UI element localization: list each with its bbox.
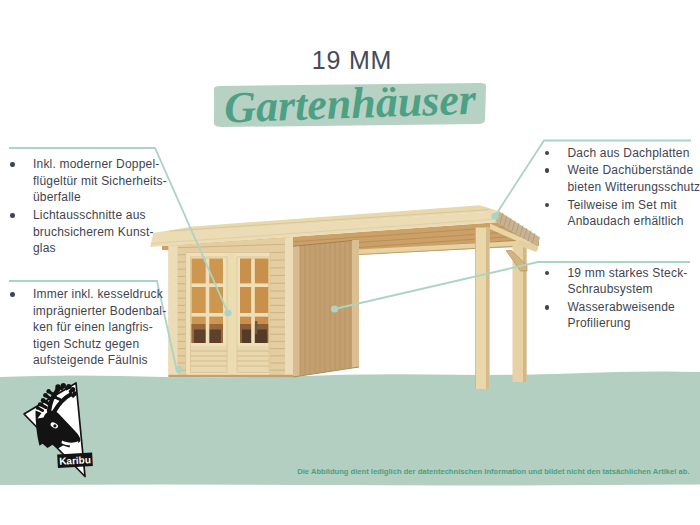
svg-text:Karibu: Karibu [59,454,91,467]
